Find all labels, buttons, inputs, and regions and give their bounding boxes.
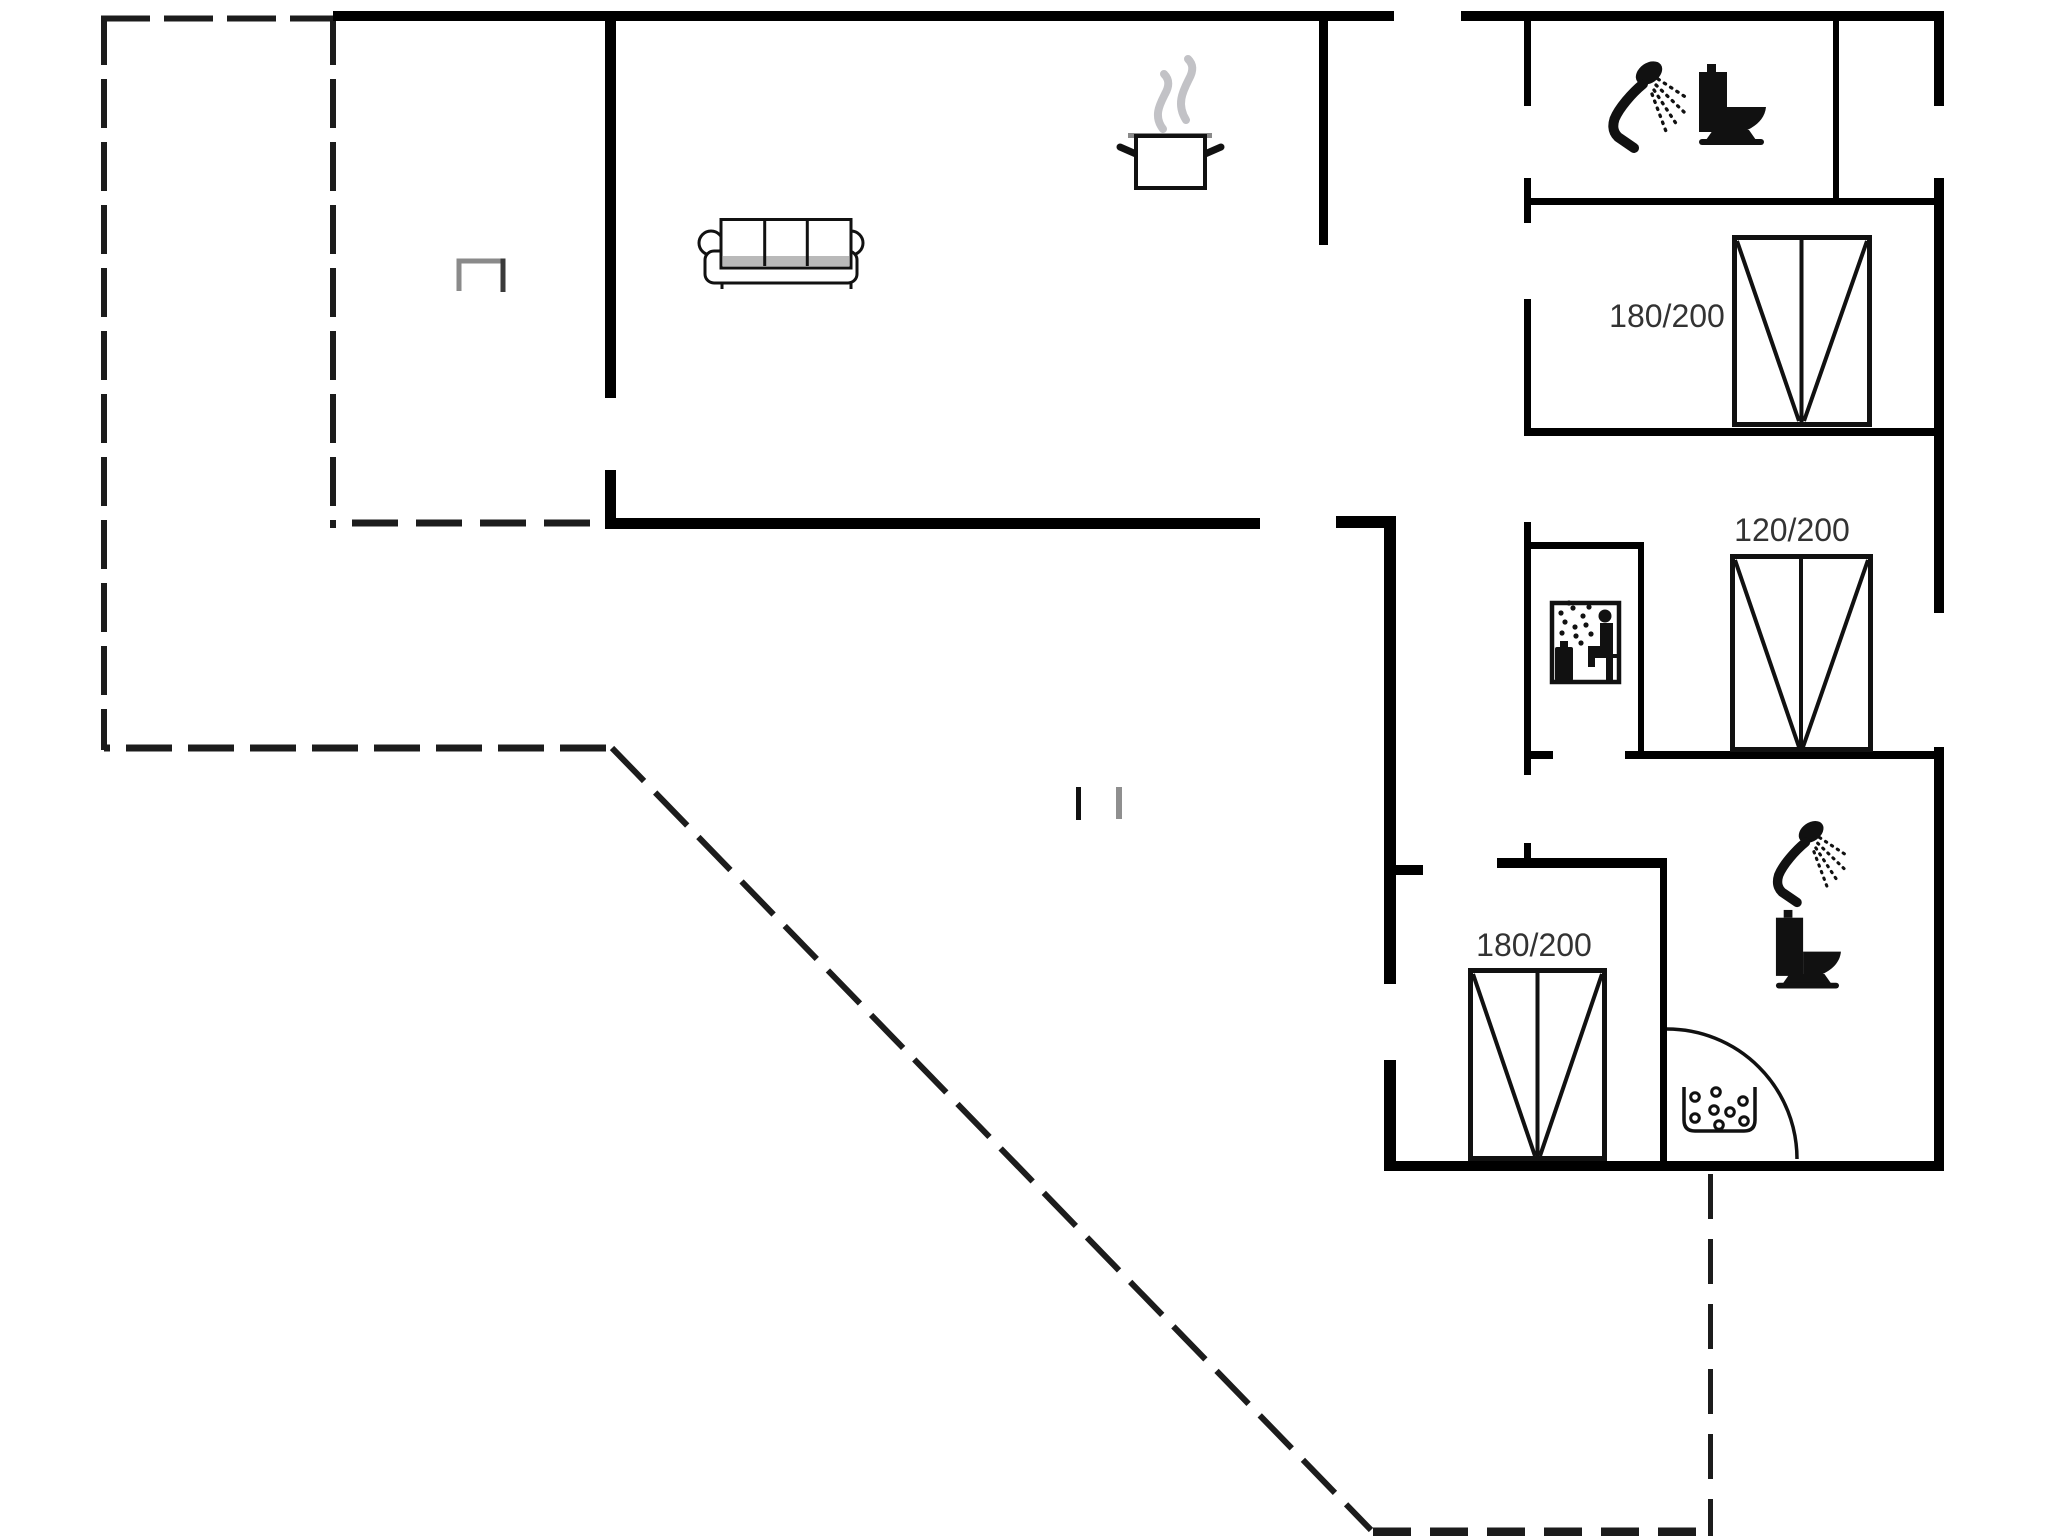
svg-text:180/200: 180/200 — [1609, 298, 1725, 334]
svg-text:180/200: 180/200 — [1476, 927, 1592, 963]
svg-text:120/200: 120/200 — [1734, 512, 1850, 548]
